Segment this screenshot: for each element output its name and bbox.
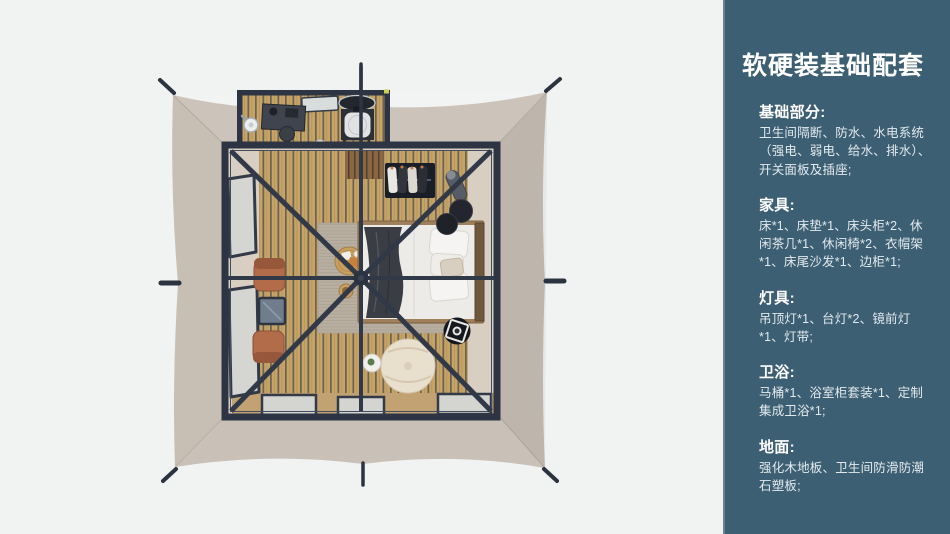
section-heading: 基础部分: [759, 101, 935, 122]
section-body: 马桶*1、浴室柜套装*1、定制集成卫浴*1; [759, 384, 935, 421]
section-heading: 卫浴: [759, 361, 935, 382]
bed [358, 221, 484, 323]
clothes-rack [385, 163, 435, 198]
spec-panel: 软硬装基础配套 基础部分: 卫生间隔断、防水、水电系统（强电、弱电、给水、排水）… [723, 0, 950, 534]
section-heading: 家具: [759, 194, 935, 215]
entry-walkway [345, 151, 383, 179]
small-tray-table [363, 354, 381, 372]
section-basics: 基础部分: 卫生间隔断、防水、水电系统（强电、弱电、给水、排水）、开关面板及插座… [759, 101, 935, 179]
section-furniture: 家具: 床*1、床垫*1、床头柜*2、休闲茶几*1、休闲椅*2、衣帽架*1、床尾… [759, 194, 935, 272]
section-body: 床*1、床垫*1、床头柜*2、休闲茶几*1、休闲椅*2、衣帽架*1、床尾沙发*1… [759, 217, 935, 272]
section-heading: 地面: [759, 436, 935, 457]
side-table [444, 318, 471, 345]
section-lighting: 灯具: 吊顶灯*1、台灯*2、镜前灯*1、灯带; [759, 287, 935, 347]
section-body: 强化木地板、卫生间防滑防潮石塑板; [759, 459, 935, 496]
section-body: 吊顶灯*1、台灯*2、镜前灯*1、灯带; [759, 310, 935, 347]
tent-top-view [0, 0, 723, 534]
tent-rendering-stage [0, 0, 723, 534]
tea-table [259, 298, 285, 324]
section-bathroom: 卫浴: 马桶*1、浴室柜套装*1、定制集成卫浴*1; [759, 361, 935, 421]
accent-dot [384, 90, 389, 94]
slide: 软硬装基础配套 基础部分: 卫生间隔断、防水、水电系统（强电、弱电、给水、排水）… [0, 0, 950, 534]
spec-sections: 基础部分: 卫生间隔断、防水、水电系统（强电、弱电、给水、排水）、开关面板及插座… [759, 101, 935, 495]
bed-pillows [429, 228, 470, 302]
leisure-chair-top [254, 258, 285, 291]
panel-title: 软硬装基础配套 [742, 46, 942, 82]
headboard [475, 223, 484, 321]
bathroom-stool [280, 127, 295, 142]
section-flooring: 地面: 强化木地板、卫生间防滑防潮石塑板; [759, 436, 935, 496]
bathroom-wall-panel [302, 96, 339, 112]
section-heading: 灯具: [759, 287, 935, 308]
section-body: 卫生间隔断、防水、水电系统（强电、弱电、给水、排水）、开关面板及插座; [759, 124, 935, 179]
